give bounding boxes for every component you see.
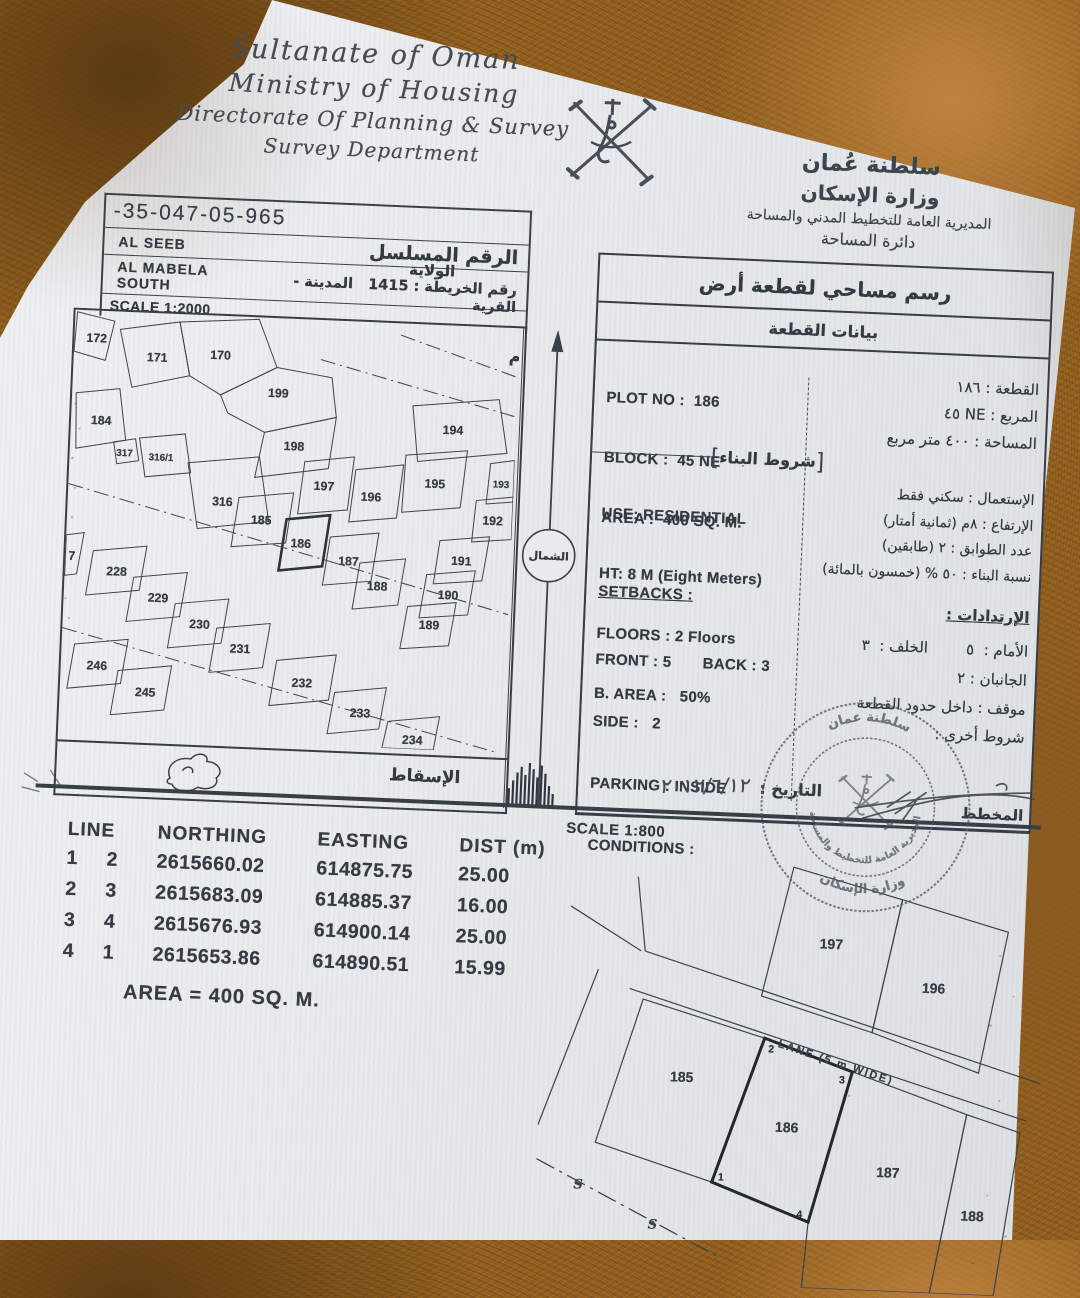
line-to: 1 [102, 941, 153, 966]
stamp-bottom-text: وزارة الإسكان [817, 870, 908, 899]
date-handwritten: ٢٠١٢/٦/١٢ [658, 773, 751, 798]
plot-label: 317 [116, 448, 133, 460]
detail-plot-label: 188 [960, 1208, 984, 1225]
document-content: Sultanate of Oman Ministry of Housing Di… [0, 0, 1080, 1282]
sides-value-ar: الجانبان : ٢ [777, 661, 1028, 690]
line-from: 1 [66, 847, 107, 872]
plot-label: 192 [482, 514, 503, 529]
svg-text:سلطنة عمان: سلطنة عمان [825, 708, 914, 736]
plot-label: 230 [189, 617, 210, 632]
plot-label: 233 [349, 706, 370, 721]
distance: 25.00 [455, 925, 544, 952]
line-to: 3 [105, 879, 156, 904]
line-from: 2 [65, 878, 106, 903]
plot-info-ar-mid: الإستعمال : سكني فقط الإرتفاع : ٨م (ثمان… [781, 483, 1035, 595]
plot-label: 228 [106, 564, 127, 579]
front-back-values-ar: الأمام : ٥ الخلف : ٣ [778, 632, 1029, 661]
plot-info-ar-top: القطعة : ١٨٦ المربع : NE ٤٥ المساحة : ٤٠… [786, 371, 1039, 462]
plot-label: 185 [251, 513, 272, 528]
projection-label: الإسقاط [388, 765, 460, 788]
overview-map-box: الموقع العام 172 171 170 199 184 198 317… [56, 308, 528, 761]
barcode-scale-icon [508, 762, 554, 806]
plot-label: 316/1 [148, 452, 174, 464]
sewer-mark: S [573, 1177, 583, 1192]
plot-label: 191 [451, 554, 472, 569]
distance: 15.99 [454, 956, 543, 983]
front-back-values: FRONT : 5 BACK : 3 [595, 651, 796, 676]
stray-marks [19, 763, 77, 805]
plot-label: 234 [402, 733, 423, 748]
header-english: Sultanate of Oman Ministry of Housing Di… [156, 30, 591, 171]
built-area-value-ar: نسبة البناء : ٥٠ % (خمسون بالمائة) [781, 559, 1032, 587]
header-arabic: سلطنة عُمان وزارة الإسكان المديرية العام… [703, 145, 1037, 258]
detail-plot-label: 197 [819, 935, 843, 952]
detail-scale: SCALE 1:800 [566, 820, 666, 841]
plot-label: 187 [338, 554, 359, 569]
line-from: 4 [62, 940, 103, 965]
northing: 2615660.02 [156, 851, 317, 881]
floors-value-ar: عدد الطوابق : ٢ (طابقين) [782, 533, 1033, 561]
distance: 16.00 [457, 894, 546, 921]
signature [846, 755, 1039, 843]
detail-plot-label: 196 [922, 980, 946, 997]
plot-label: 194 [442, 423, 463, 438]
distance: 25.00 [458, 863, 547, 890]
easting: 614875.75 [316, 857, 459, 886]
corner-1: 1 [718, 1171, 724, 1183]
wilaya-value: AL SEEB [104, 233, 186, 252]
plot-label: 231 [229, 641, 250, 656]
plot-label-186: 186 [290, 536, 311, 551]
easting: 614900.14 [313, 919, 456, 948]
plot-label: 7 [68, 549, 76, 563]
plot-label: 170 [210, 348, 231, 363]
sewer-line [533, 1159, 722, 1257]
oman-emblem-icon [559, 87, 663, 195]
detail-plot-label: 187 [876, 1164, 900, 1181]
plot-label: 246 [86, 658, 107, 673]
corner-3: 3 [839, 1074, 845, 1086]
col-header-line: LINE [67, 819, 158, 845]
stamp-top-text: سلطنة عمان [825, 708, 914, 736]
plot-label: 196 [360, 490, 381, 505]
lane-label: LANE (5 m WIDE) [776, 1038, 895, 1088]
detail-plot-label: 185 [670, 1068, 694, 1085]
plot-label: 197 [313, 479, 334, 494]
plot-label: 198 [283, 439, 304, 454]
line-to: 2 [106, 848, 157, 873]
use-value: USE: RESIDENTIAL [601, 505, 802, 530]
sewer-mark: S [647, 1217, 657, 1232]
easting: 614885.37 [315, 888, 458, 917]
plot-label: 184 [91, 413, 112, 428]
svg-text:وزارة الإسكان: وزارة الإسكان [817, 870, 908, 899]
use-value-ar: الإستعمال : سكني فقط [784, 483, 1035, 511]
plot-label: 190 [437, 588, 458, 603]
block-no-ar: المربع : NE ٤٥ [788, 397, 1039, 426]
plot-label: 229 [147, 591, 168, 606]
plot-label: 245 [135, 685, 156, 700]
corner-4: 4 [796, 1209, 802, 1221]
overview-map-drawing: الموقع العام 172 171 170 199 184 198 317… [58, 310, 520, 753]
north-label: الشمال [528, 549, 569, 564]
plot-label: 172 [86, 331, 107, 346]
line-from: 3 [64, 909, 105, 934]
plot-no-ar: القطعة : ١٨٦ [789, 371, 1040, 400]
col-header-dist: DIST (m) [459, 835, 548, 861]
plot-label: 189 [418, 618, 439, 633]
plot-label: 195 [424, 477, 445, 492]
col-header-easting: EASTING [317, 829, 460, 857]
detail-plot-label-186: 186 [775, 1119, 799, 1136]
easting: 614890.51 [312, 950, 455, 979]
plot-label: 199 [268, 386, 289, 401]
height-value-ar: الإرتفاع : ٨م (ثمانية أمتار) [783, 508, 1034, 536]
setbacks-heading-ar: الإرتدادات : [779, 598, 1030, 626]
plot-label: 171 [147, 350, 168, 365]
line-to: 4 [104, 910, 155, 935]
plot-no: PLOT NO : 186 [606, 389, 807, 414]
plot-label: 188 [367, 579, 388, 594]
overview-map: الموقع العام 172 171 170 199 184 198 317… [53, 308, 523, 814]
site-plan-label: الموقع العام [509, 346, 521, 369]
town-value: AL MABELA SOUTH [102, 258, 259, 296]
area-value-ar: المساحة : ٤٠٠ متر مربع [787, 424, 1038, 453]
serial-number: -35-047-05-965 [105, 199, 287, 231]
plot-label: 316 [212, 494, 233, 509]
map-number-label: رقم الخريطة : 1415 [368, 277, 517, 299]
plot-label: 232 [291, 676, 312, 691]
coordinates-table: LINE NORTHING EASTING DIST (m) 1 2 26156… [61, 819, 548, 1022]
plot-label: 193 [493, 479, 510, 491]
corner-2: 2 [768, 1043, 774, 1055]
col-header-northing: NORTHING [157, 823, 318, 852]
